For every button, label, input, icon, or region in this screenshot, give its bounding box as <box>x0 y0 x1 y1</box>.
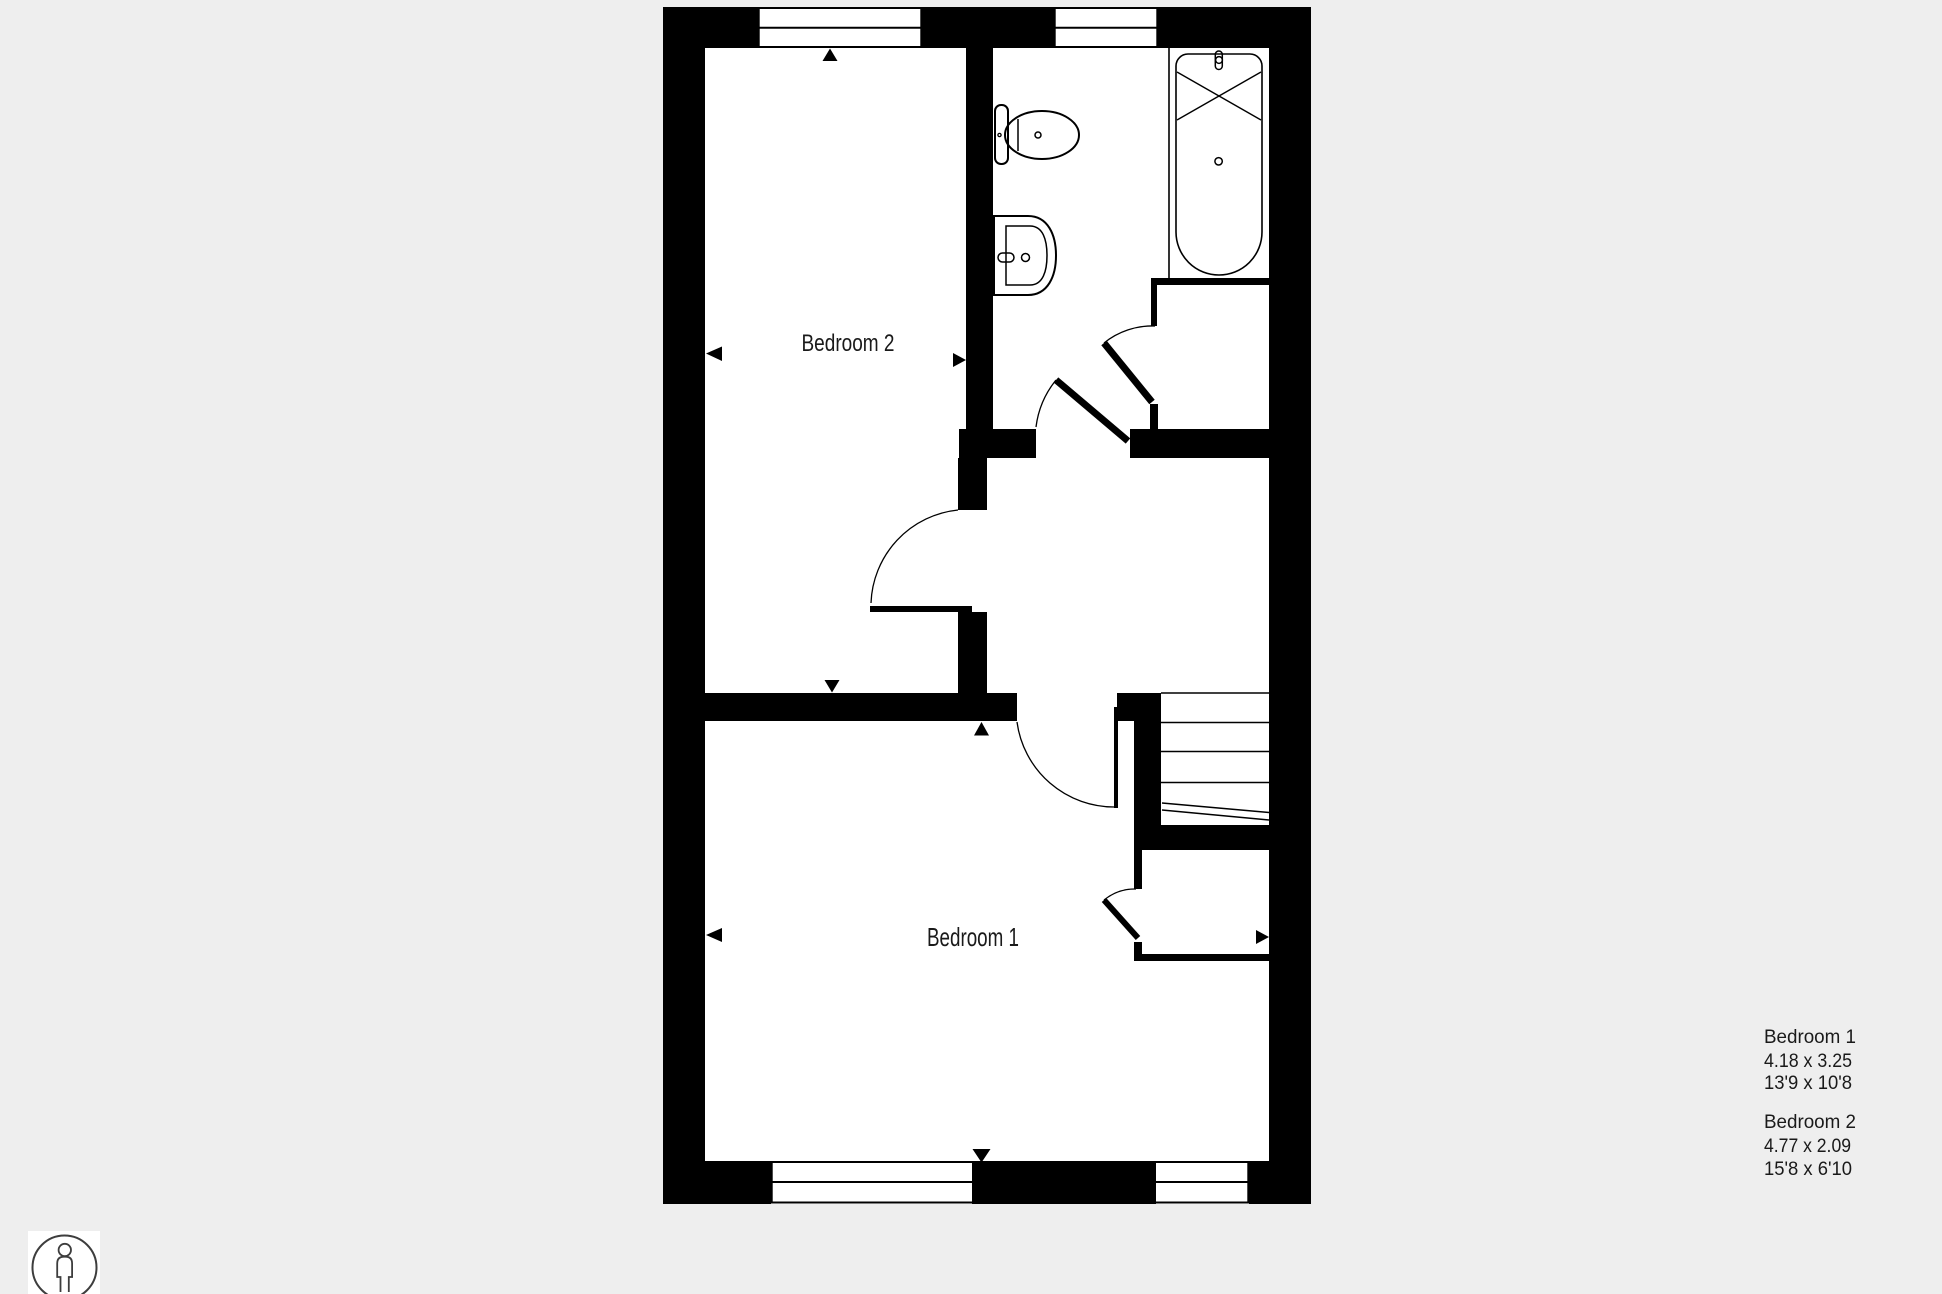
svg-text:15'8 x 6'10: 15'8 x 6'10 <box>1764 1158 1852 1180</box>
svg-text:4.77 x 2.09: 4.77 x 2.09 <box>1764 1135 1851 1157</box>
svg-text:13'9 x 10'8: 13'9 x 10'8 <box>1764 1072 1852 1094</box>
svg-text:Bedroom 1: Bedroom 1 <box>927 922 1019 952</box>
svg-text:Bedroom 2: Bedroom 2 <box>1764 1111 1856 1133</box>
svg-text:4.18 x 3.25: 4.18 x 3.25 <box>1764 1050 1852 1072</box>
svg-text:Bedroom 1: Bedroom 1 <box>1764 1026 1856 1048</box>
svg-text:Bedroom 2: Bedroom 2 <box>802 330 895 357</box>
